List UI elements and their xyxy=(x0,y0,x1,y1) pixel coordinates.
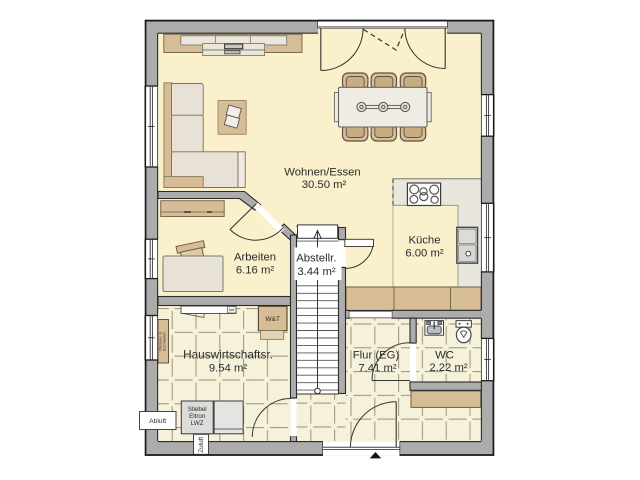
svg-text:Abluft: Abluft xyxy=(149,418,166,425)
svg-text:Wohnen/Essen: Wohnen/Essen xyxy=(284,167,360,179)
svg-text:W&T: W&T xyxy=(265,316,280,323)
svg-text:Stiebel: Stiebel xyxy=(188,406,207,413)
svg-text:WC: WC xyxy=(435,350,454,362)
svg-text:Hauswirtschaftsr.: Hauswirtschaftsr. xyxy=(183,348,273,362)
svg-text:2.22 m²: 2.22 m² xyxy=(429,362,468,374)
svg-text:Zuluft: Zuluft xyxy=(198,437,205,453)
svg-text:Flur (EG): Flur (EG) xyxy=(353,350,400,362)
svg-text:LWZ: LWZ xyxy=(191,420,204,427)
svg-text:Abstellr.: Abstellr. xyxy=(296,253,336,265)
svg-text:3.44 m²: 3.44 m² xyxy=(297,266,336,278)
svg-text:Küche: Küche xyxy=(408,235,440,247)
svg-text:6.00 m²: 6.00 m² xyxy=(405,248,444,260)
svg-text:kwt: kwt xyxy=(229,308,234,312)
svg-text:30.50 m²: 30.50 m² xyxy=(302,179,347,191)
svg-text:9.54 m²: 9.54 m² xyxy=(209,363,248,375)
svg-text:Arbeiten: Arbeiten xyxy=(234,252,276,264)
svg-text:6.16 m²: 6.16 m² xyxy=(236,265,275,277)
svg-text:Durchlauferh.: Durchlauferh. xyxy=(163,331,167,351)
svg-text:7.41 m²: 7.41 m² xyxy=(358,363,397,375)
svg-text:Eltron: Eltron xyxy=(189,413,206,420)
